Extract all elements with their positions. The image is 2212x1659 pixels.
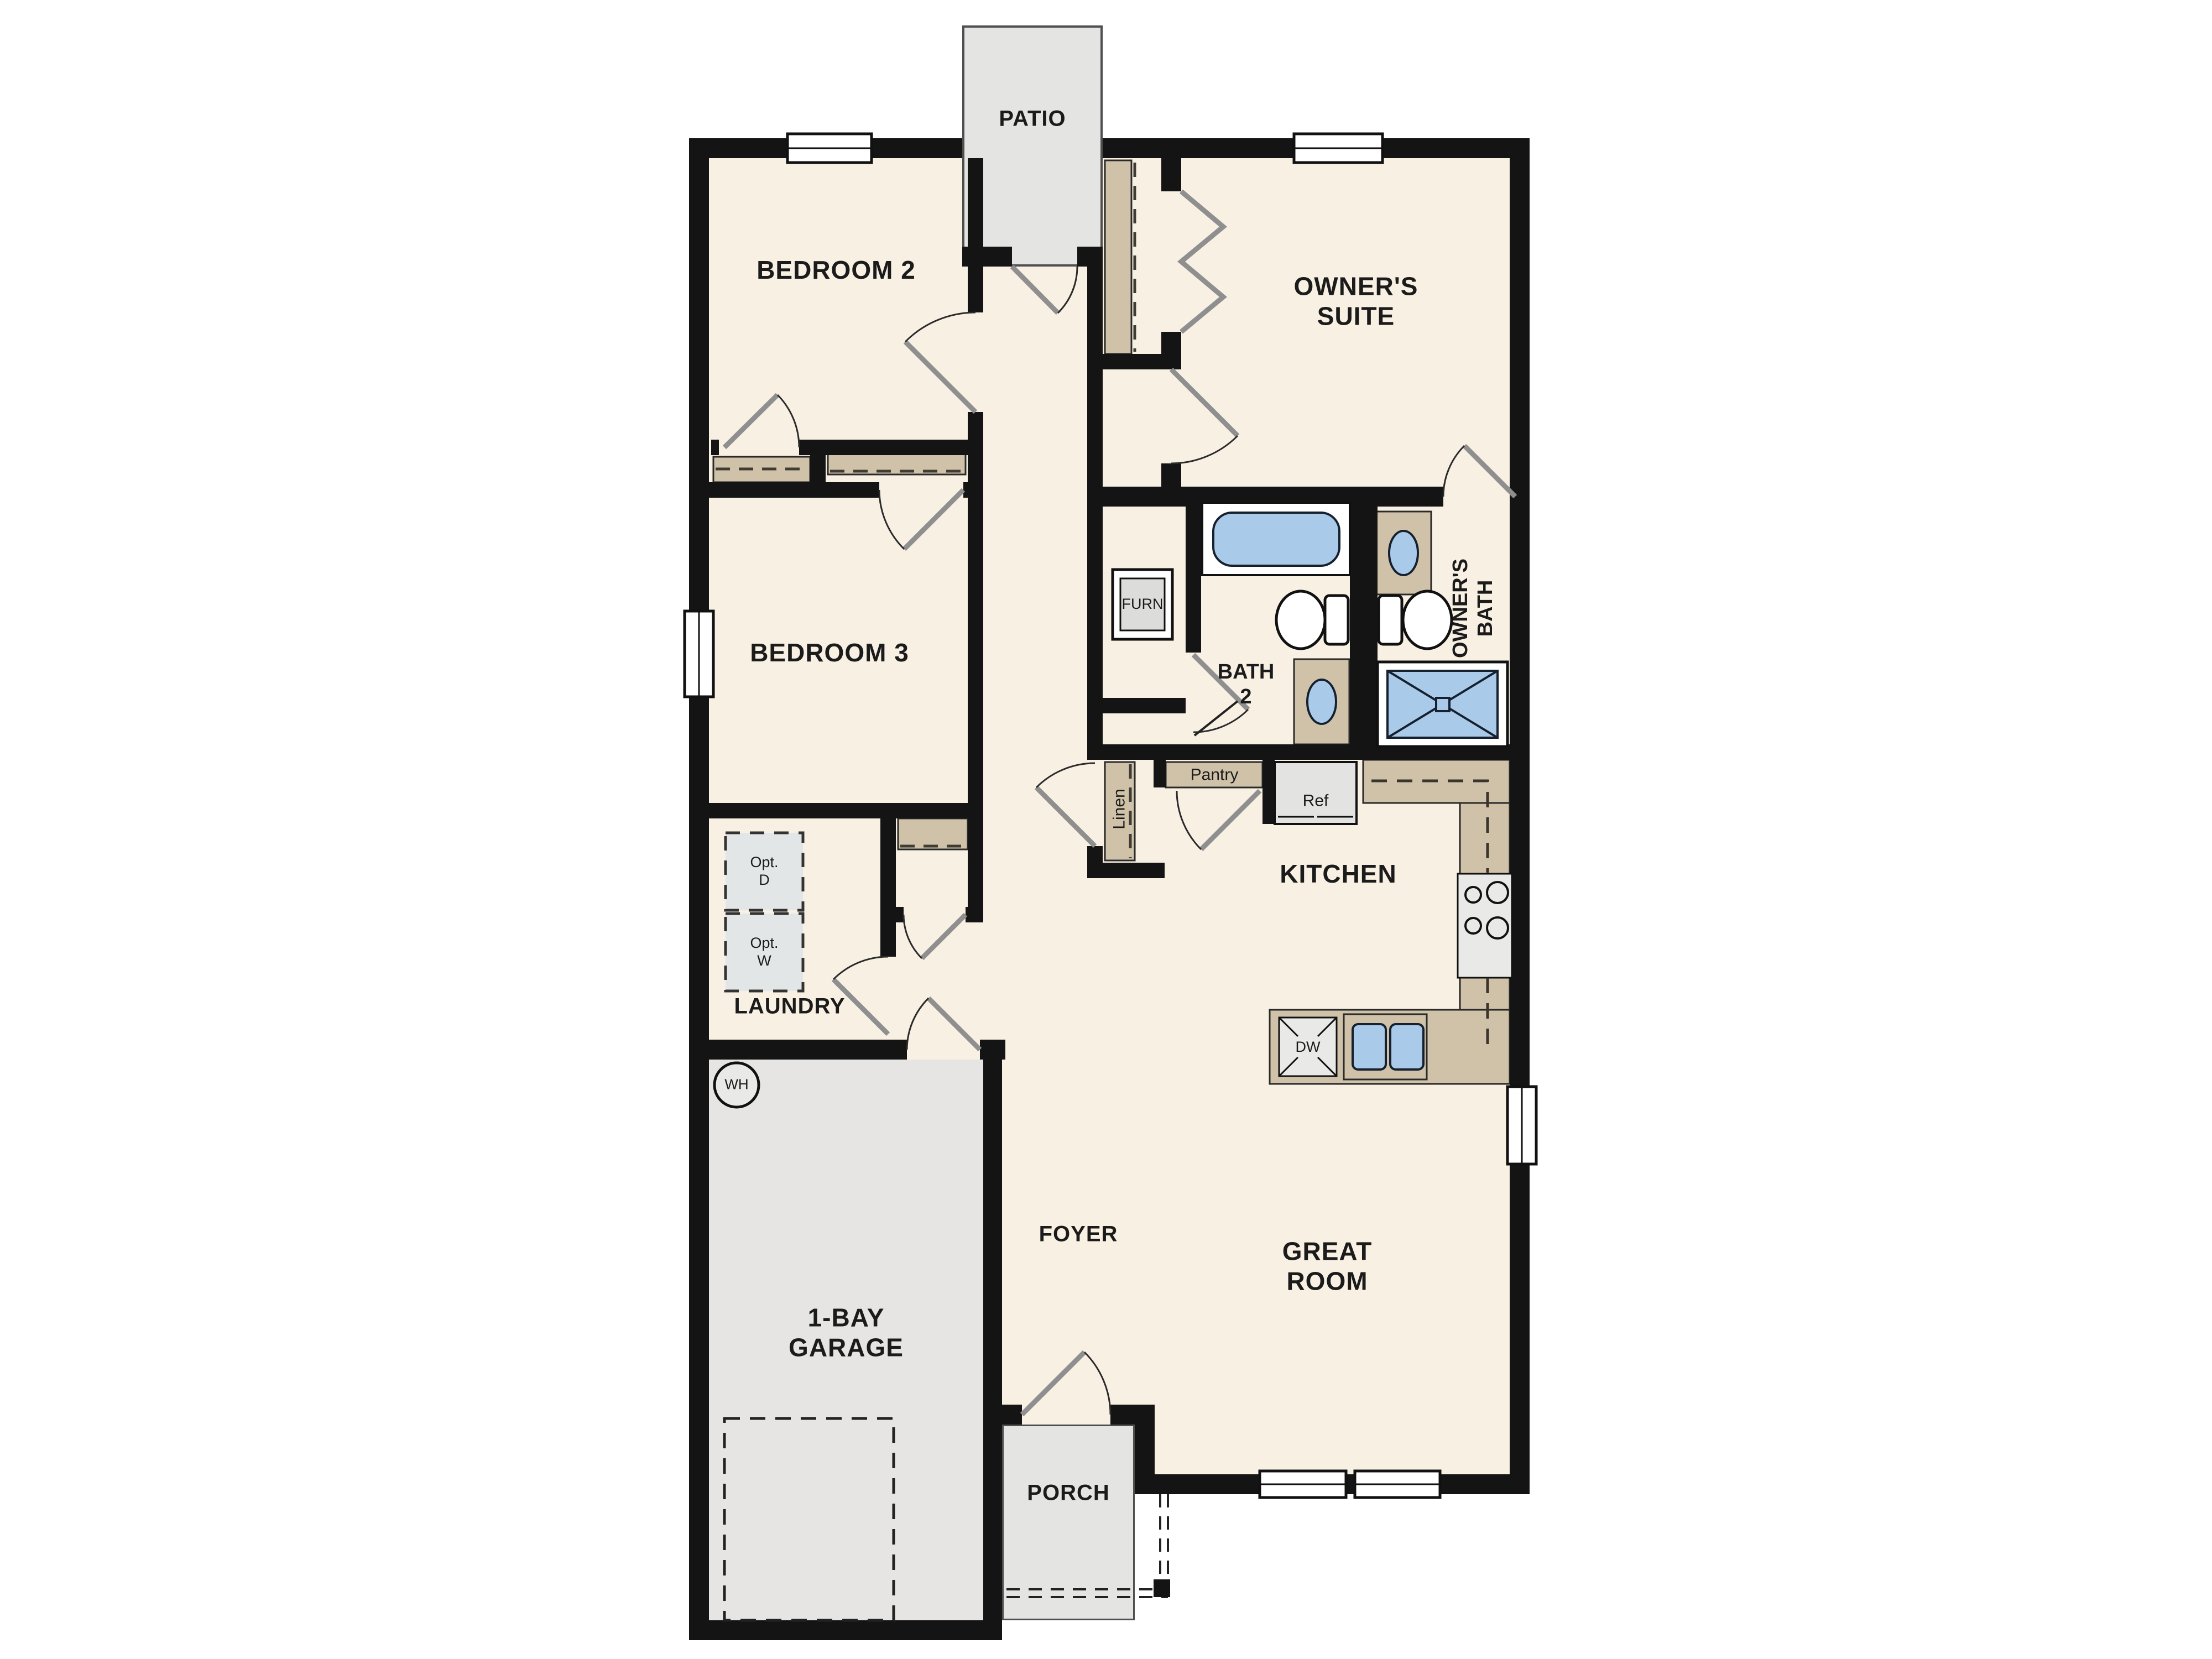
owners-toilet-tank	[1379, 596, 1402, 644]
great-room-line2: ROOM	[1282, 1266, 1373, 1296]
dishwasher-text: DW	[1296, 1039, 1321, 1055]
owners-suite-line2: SUITE	[1294, 301, 1418, 331]
wall-coat-right	[968, 818, 983, 922]
wall-coat-bottom-b	[966, 907, 983, 922]
floor-plan: PATIO BEDROOM 2 OWNER'S SUITE BEDROOM 3 …	[0, 0, 2212, 1659]
wall-bedroom3-top-a	[709, 482, 879, 498]
owners-suite-door-leaf	[1171, 369, 1238, 436]
pantry-label: Pantry	[1191, 765, 1239, 784]
bath2-label: BATH 2	[1218, 660, 1275, 709]
wall-garage-right	[983, 1040, 1002, 1640]
bedroom3-text: BEDROOM 3	[750, 638, 909, 667]
opt-dryer-line1: Opt.	[750, 854, 778, 872]
owners-suite-label: OWNER'S SUITE	[1294, 272, 1418, 332]
laundry-label: LAUNDRY	[734, 993, 845, 1019]
owners-suite-door-arc	[1171, 436, 1238, 463]
wall-hall-right-mid	[1087, 507, 1103, 747]
garage-label: 1-BAY GARAGE	[789, 1303, 904, 1363]
owners-bath-label: OWNER'S BATH	[1448, 559, 1498, 658]
wall-pantry-left	[1154, 760, 1166, 787]
pantry-text: Pantry	[1191, 765, 1239, 784]
front-door-leaf	[1022, 1352, 1084, 1415]
pantry-door-arc	[1177, 791, 1201, 849]
foyer-label: FOYER	[1039, 1221, 1118, 1247]
wall-owners-suite-stub	[1161, 463, 1181, 487]
great-room-label: GREAT ROOM	[1282, 1237, 1373, 1297]
owners-closet-shelf	[1105, 160, 1131, 354]
wall-laundry-right	[880, 803, 896, 957]
kitchen-text: KITCHEN	[1280, 859, 1396, 888]
wall-bedroom2-right-a	[968, 158, 983, 312]
bath2-line1: BATH	[1218, 660, 1275, 685]
wall-linen-bottom	[1103, 863, 1165, 878]
wall-garage-top-stub	[980, 1040, 1005, 1060]
opt-dryer-line2: D	[750, 872, 778, 889]
garage-entry-door-leaf	[928, 998, 980, 1050]
patio-door-leaf	[1012, 267, 1058, 313]
wall-patio-bottom-b	[1077, 247, 1103, 267]
kitchen-label: KITCHEN	[1280, 859, 1396, 889]
furnace-label: FURN	[1122, 596, 1164, 613]
patio-label: PATIO	[999, 106, 1066, 132]
opt-dryer-label: Opt. D	[750, 854, 778, 889]
owners-suite-line1: OWNER'S	[1294, 272, 1418, 301]
coat-closet-door-leaf	[922, 915, 966, 958]
linen-label: Linen	[1109, 789, 1129, 829]
wall-furn-bottom	[1103, 698, 1186, 713]
wall-bedroom3-bottom	[689, 803, 983, 818]
wall-garage-bottom	[689, 1620, 1002, 1640]
walls	[689, 138, 1530, 1640]
wall-patio-bottom-a	[962, 247, 1012, 267]
water-heater-label: WH	[724, 1076, 748, 1093]
wall-front-right	[1110, 1405, 1155, 1425]
laundry-door-arc	[833, 957, 888, 979]
plan-graphics	[0, 0, 2212, 1659]
wall-bedroom3-right	[968, 498, 983, 803]
bedroom2-door-leaf	[905, 342, 975, 412]
bedroom2-closet-door-leaf	[724, 395, 778, 447]
wall-bath-top-b	[1515, 487, 1530, 507]
linen-text: Linen	[1110, 789, 1128, 829]
wall-left	[689, 138, 709, 1639]
bathtub	[1213, 513, 1339, 566]
linen-door-arc	[1036, 763, 1095, 787]
garage-door-dash	[724, 1418, 894, 1620]
garage-line2: GARAGE	[789, 1333, 904, 1363]
bedroom3-door-leaf	[904, 490, 963, 549]
linen-door-leaf	[1036, 787, 1095, 846]
refrigerator-text: Ref	[1303, 791, 1329, 810]
bedroom3-label: BEDROOM 3	[750, 638, 909, 667]
wall-front-left	[1002, 1405, 1022, 1425]
owners-bath-door-arc	[1443, 446, 1464, 497]
bedroom2-closet-door-arc	[778, 395, 799, 447]
owners-bath-line2: BATH	[1473, 559, 1498, 658]
wall-linen-left-stub	[1087, 846, 1103, 878]
bath2-sink	[1307, 680, 1336, 724]
wall-coat-bottom-a	[896, 907, 904, 922]
owners-toilet-bowl	[1403, 591, 1452, 649]
bedroom2-door-arc	[905, 312, 975, 342]
garage-line1: 1-BAY	[789, 1303, 904, 1333]
furnace-text: FURN	[1122, 596, 1164, 612]
wall-closet-top-a	[711, 440, 719, 455]
kitchen-sink-left	[1353, 1024, 1386, 1070]
opt-washer-label: Opt. W	[750, 935, 778, 970]
patio-text: PATIO	[999, 106, 1066, 131]
wall-porch-right	[1135, 1425, 1155, 1494]
owners-closet-bifold	[1181, 191, 1223, 332]
owners-bath-line1: OWNER'S	[1448, 559, 1473, 658]
dishwasher-label: DW	[1296, 1039, 1321, 1056]
foyer-text: FOYER	[1039, 1222, 1118, 1246]
laundry-text: LAUNDRY	[734, 994, 845, 1018]
owners-sink	[1389, 531, 1418, 575]
wall-owners-closet-right-b	[1161, 332, 1181, 369]
refrigerator-label: Ref	[1303, 791, 1329, 810]
porch-text: PORCH	[1027, 1480, 1109, 1505]
shower-drain	[1436, 698, 1449, 711]
wall-bedroom3-top-b	[963, 482, 983, 498]
porch-post	[1154, 1579, 1170, 1597]
opt-washer-line2: W	[750, 952, 778, 970]
owners-bath-door-leaf	[1464, 446, 1515, 497]
wall-owners-closet-right-a	[1161, 158, 1181, 191]
front-door-arc	[1084, 1352, 1110, 1415]
kitchen-sink-right	[1390, 1024, 1423, 1070]
patio-door-arc	[1058, 267, 1077, 313]
opt-washer-line1: Opt.	[750, 935, 778, 952]
bath2-toilet-tank	[1325, 596, 1348, 644]
wall-bath-divider	[1350, 507, 1378, 744]
bedroom2-label: BEDROOM 2	[757, 255, 916, 285]
porch-label: PORCH	[1027, 1480, 1109, 1506]
bedroom3-door-arc	[879, 490, 904, 549]
bedroom2-text: BEDROOM 2	[757, 255, 916, 284]
coat-closet-door-arc	[904, 915, 922, 958]
bath2-line2: 2	[1218, 685, 1275, 709]
pantry-door-leaf	[1201, 791, 1260, 849]
wall-garage-top	[689, 1040, 907, 1060]
water-heater-text: WH	[724, 1076, 748, 1093]
wall-right	[1510, 158, 1530, 1494]
great-room-line1: GREAT	[1282, 1237, 1373, 1266]
wall-pantry-right	[1262, 760, 1275, 824]
wall-hall-right-upper	[1087, 267, 1103, 487]
wall-furn-right	[1186, 507, 1201, 653]
garage-entry-door-arc	[907, 998, 928, 1050]
bath2-toilet-bowl	[1276, 591, 1325, 649]
